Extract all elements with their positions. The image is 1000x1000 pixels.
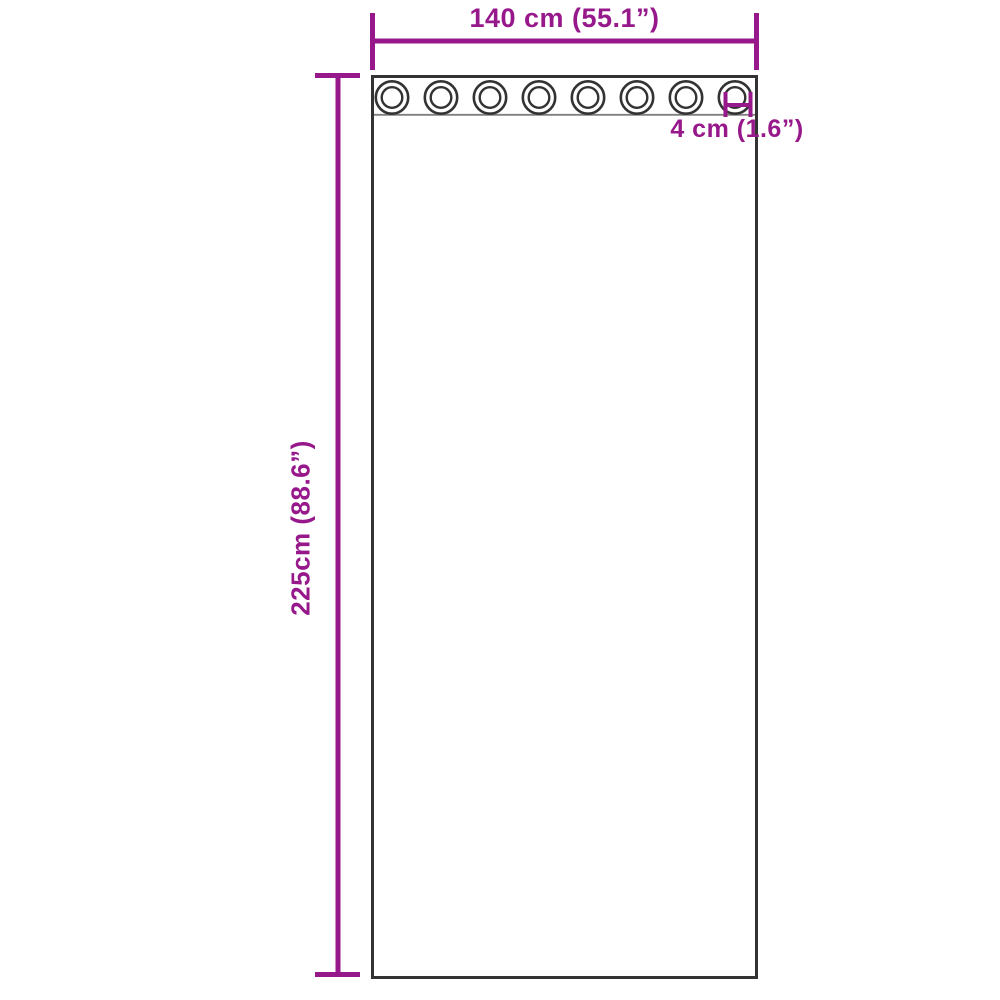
height-dimension-line [315,76,360,976]
height-dimension-label: 225cm (88.6”) [287,440,316,616]
grommet-dimension-label: 4 cm (1.6”) [670,116,803,144]
width-dimension-label: 140 cm (55.1”) [372,4,757,34]
curtain-diagram-graphic [0,0,1000,1000]
curtain-panel-outline [373,77,757,978]
product-dimension-diagram: 140 cm (55.1”) 225cm (88.6”) 4 cm (1.6”) [0,0,1000,1000]
